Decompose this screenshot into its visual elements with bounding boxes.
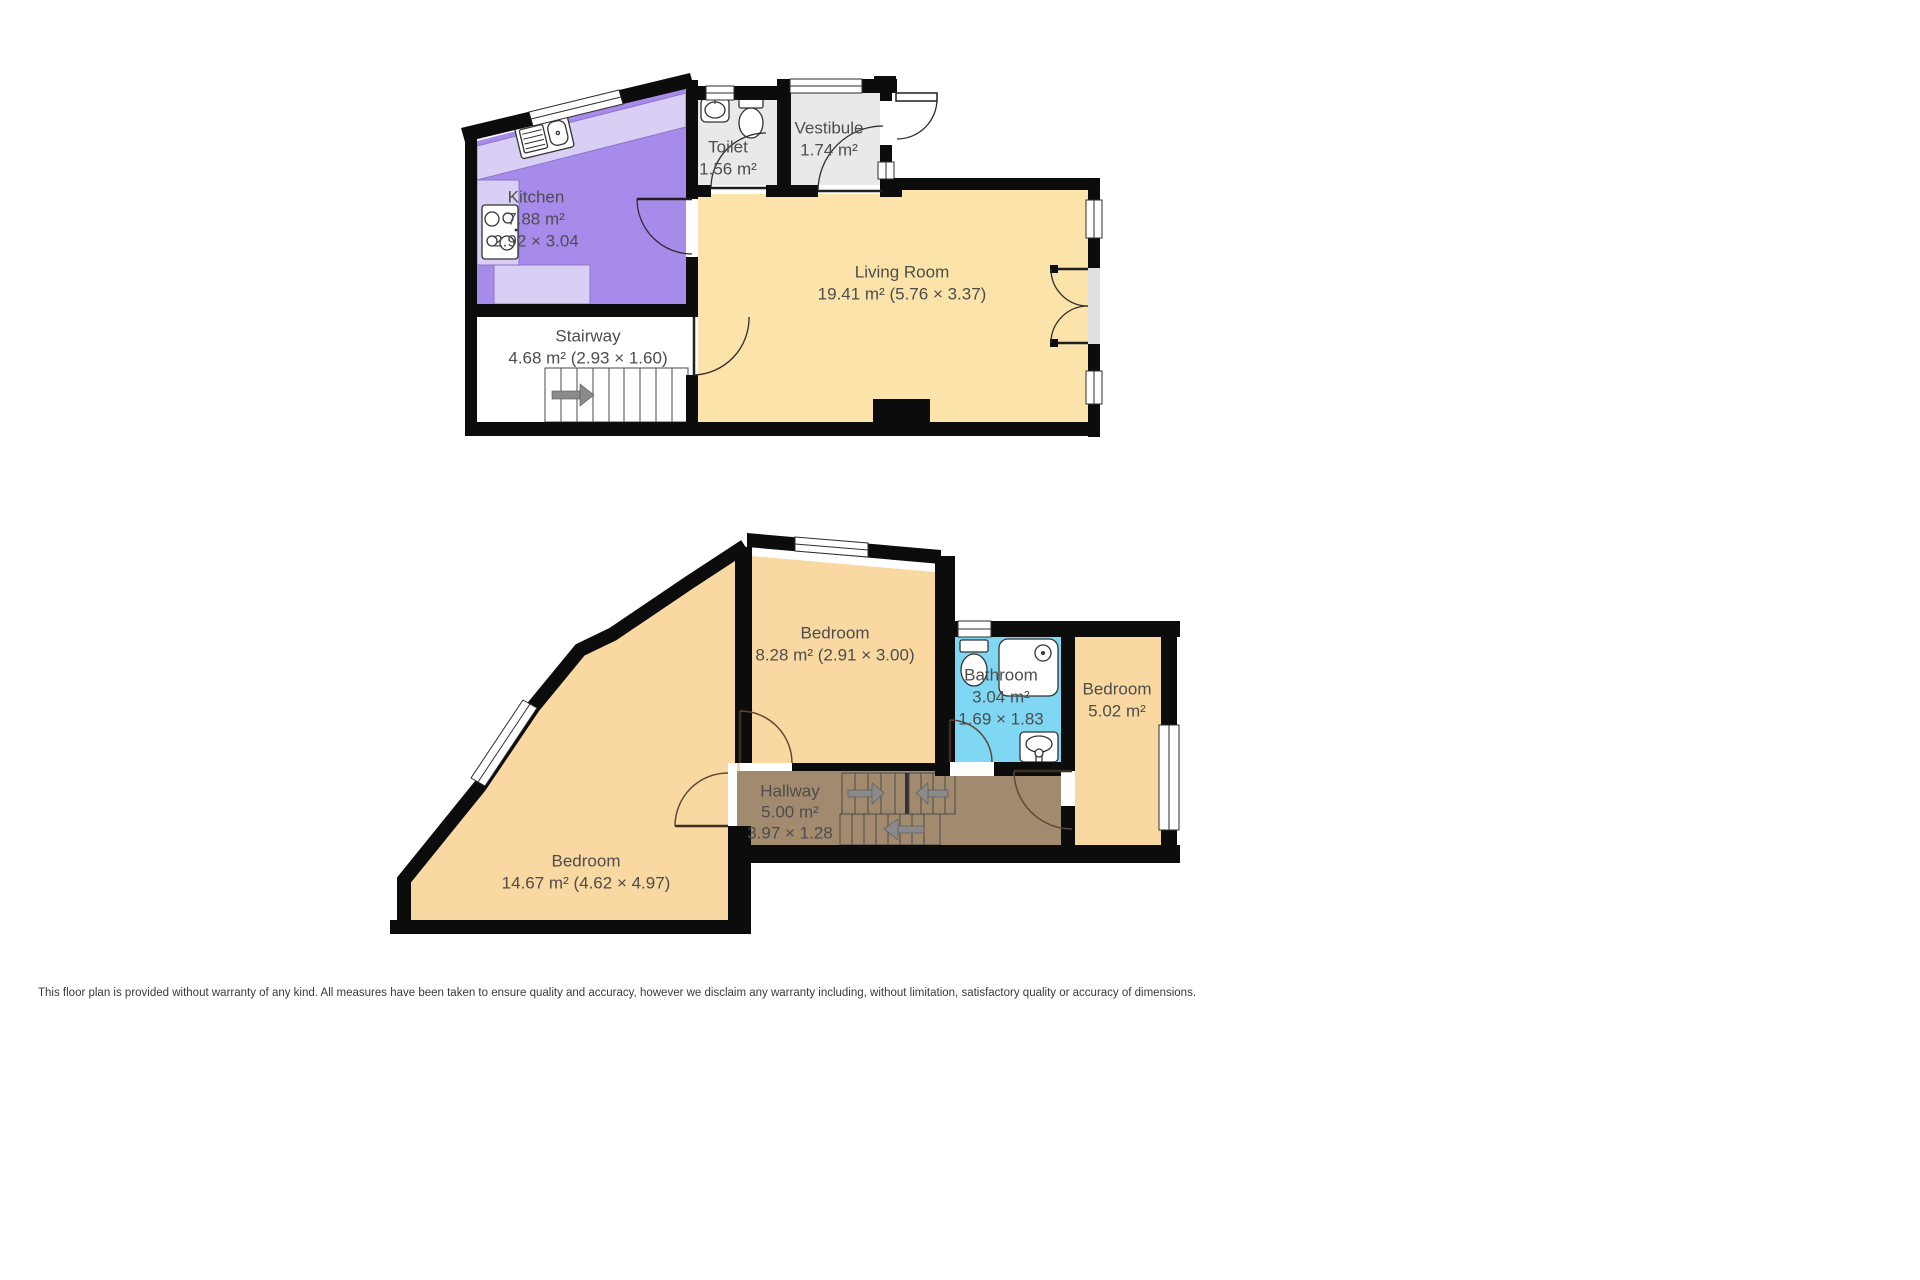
toilet-name: Toilet	[708, 138, 748, 157]
kitchen-area: 7.88 m²	[507, 210, 565, 229]
bedroom-small-floor	[1075, 637, 1161, 845]
vestibule-name: Vestibule	[795, 119, 864, 138]
upper-floor-plan: Kitchen 7.88 m² 2.92 × 3.04 Toilet 1.56 …	[461, 73, 1102, 437]
bedroom-large-name: Bedroom	[552, 852, 621, 871]
vestibule-window	[790, 79, 862, 93]
bedroom-mid-area: 8.28 m² (2.91 × 3.00)	[755, 646, 914, 665]
lower-floor-plan: Bedroom 8.28 m² (2.91 × 3.00) Bathroom 3…	[390, 533, 1180, 934]
kitchen-dims: 2.92 × 3.04	[493, 232, 579, 251]
bathroom-area: 3.04 m²	[972, 688, 1030, 707]
vestibule-floor	[791, 92, 880, 185]
toilet-icon	[739, 97, 763, 138]
living-room-window-bottom	[1086, 371, 1102, 404]
bedroom-mid-window	[795, 537, 868, 557]
stairway-name: Stairway	[555, 327, 621, 346]
hallway-name: Hallway	[760, 782, 820, 801]
floor-plan-page: Kitchen 7.88 m² 2.92 × 3.04 Toilet 1.56 …	[0, 0, 1920, 1280]
disclaimer-text: This floor plan is provided without warr…	[38, 987, 1196, 999]
living-room-name: Living Room	[855, 263, 950, 282]
kitchen-name: Kitchen	[508, 188, 565, 207]
bedroom-mid-name: Bedroom	[801, 624, 870, 643]
living-room-window-top	[1086, 200, 1102, 238]
bathroom-dims: 1.69 × 1.83	[958, 710, 1044, 729]
floor-plan-drawing: Kitchen 7.88 m² 2.92 × 3.04 Toilet 1.56 …	[0, 0, 1920, 1280]
bedroom-small-window	[1159, 725, 1179, 830]
bedroom-large-area: 14.67 m² (4.62 × 4.97)	[502, 874, 671, 893]
vestibule-side-window	[878, 162, 894, 179]
toilet-sink-icon	[701, 98, 729, 122]
toilet-window	[706, 86, 734, 100]
hallway-dims: 3.97 × 1.28	[747, 824, 833, 843]
living-room-floor	[698, 186, 1088, 424]
stairway-area: 4.68 m² (2.93 × 1.60)	[508, 349, 667, 368]
bedroom-small-area: 5.02 m²	[1088, 702, 1146, 721]
bathroom-sink-icon	[1020, 732, 1058, 762]
bedroom-small-name: Bedroom	[1083, 680, 1152, 699]
entry-door	[896, 93, 937, 139]
vestibule-area: 1.74 m²	[800, 141, 858, 160]
hallway-area: 5.00 m²	[761, 803, 819, 822]
bathroom-window	[958, 621, 991, 637]
living-room-area: 19.41 m² (5.76 × 3.37)	[818, 285, 987, 304]
toilet-area: 1.56 m²	[699, 160, 757, 179]
bathroom-name: Bathroom	[964, 666, 1038, 685]
